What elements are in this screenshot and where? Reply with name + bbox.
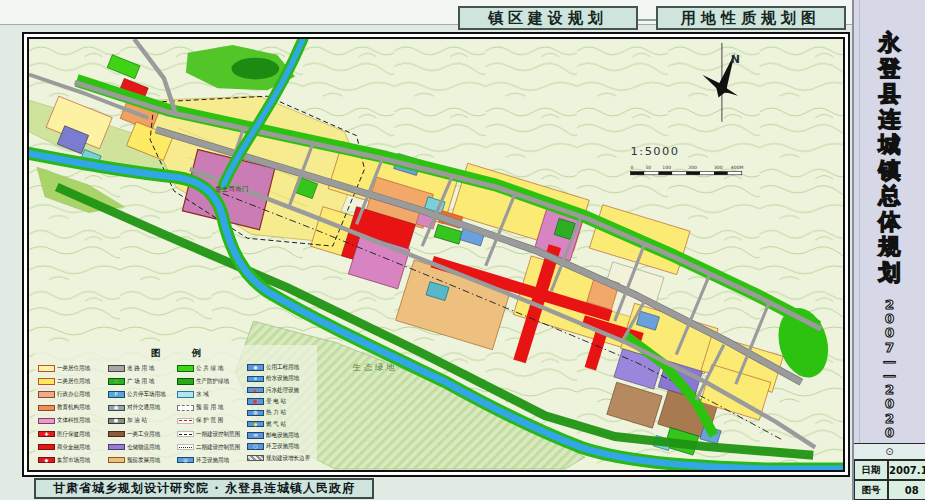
legend-item: 一类居住用地 [38,362,105,375]
legend-swatch: ◉ [247,364,264,371]
legend-item-label: 一类居住用地 [57,364,90,373]
legend-title: 图 例 [49,347,317,360]
sidebar-period-char: — [883,369,896,383]
scale-tick-label: 50 [645,165,651,170]
legend-item: 教育机构用地 [38,401,105,414]
legend-swatch-glyph: ∷ [114,379,117,384]
sidebar-title-char: 登 [879,56,901,82]
legend-item: ▣对外交通用地 [108,401,175,414]
legend-item: 商业金融用地 [38,441,105,454]
legend-item: 预留发展用地 [108,454,175,467]
legend-item: 仓储物流用地 [108,441,175,454]
stamp-icon: ⊙ [854,443,925,460]
legend-swatch-glyph: ▪ [254,376,257,381]
legend-swatch [38,391,55,398]
legend-swatch-glyph: P [114,392,117,397]
sidebar-period-char: 2 [885,412,894,426]
legend-item: 文体科技用地 [38,414,105,427]
legend-item: 规划建设增长边界 [247,452,314,463]
legend-column: 公 共 绿 地生产防护绿地水 域预 留 用 地保 护 范 围一期建设控制范围二期… [177,362,244,467]
legend-swatch [177,444,194,451]
sidebar-period-char: 0 [885,312,894,326]
legend-swatch [177,391,194,398]
legend-swatch-glyph: ◉ [253,365,257,370]
credit-bar: 甘肃省城乡规划设计研究院 · 永登县连城镇人民政府 [34,478,374,499]
legend-swatch [177,378,194,385]
scale-tick-label: 0 [631,165,634,170]
legend-item: ✚医疗保健用地 [38,427,105,440]
legend-item-label: 变 电 站 [266,397,286,406]
legend-swatch-glyph: ● [253,399,257,404]
legend-swatch: ▪ [247,376,264,383]
legend-item-label: 水 域 [196,390,209,399]
scale-tick-label: 400M [731,165,744,170]
legend-grid: 一类居住用地二类居住用地行政办公用地教育机构用地文体科技用地✚医疗保健用地商业金… [35,362,317,467]
sidebar-title: 永登县连城镇总体规划 [854,30,925,285]
sidebar-period-char: — [883,355,896,369]
legend-column: ◉公用工程用地▪给水设施用地▪污水处理设施●变 电 站◍热 力 站◆燃 气 站✉… [247,362,314,467]
map-legend: 图 例 一类居住用地二类居住用地行政办公用地教育机构用地文体科技用地✚医疗保健用… [35,345,317,471]
scale-tick-label: 200 [688,165,697,170]
legend-item-label: 公共停车场用地 [127,390,166,399]
sidebar-title-char: 总 [879,183,901,209]
sidebar-title-char: 划 [879,260,901,286]
legend-item: ◉公用工程用地 [247,362,314,373]
legend-swatch: P [108,391,125,398]
scale-tick-label: 100 [662,165,671,170]
sidebar-title-char: 永 [879,30,901,56]
sidebar-period-char: 0 [885,426,894,440]
legend-item-label: 加 油 站 [127,416,147,425]
legend-item-label: 道 路 用 地 [127,364,154,373]
legend-swatch [38,365,55,372]
sidebar-period: 2007——2020 [854,298,925,440]
legend-item-label: 预 留 用 地 [196,403,223,412]
title-connector-line [636,19,656,21]
map-label-eco: 生 态 绿 地 [353,362,395,372]
legend-item: ◆集贸市场用地 [38,454,105,467]
legend-swatch [177,431,194,438]
legend-swatch: ◆ [247,421,264,428]
legend-item: ▪给水设施用地 [247,373,314,384]
info-value: 2007.11 [888,460,925,480]
legend-swatch [177,418,194,425]
legend-swatch: ◍ [247,410,264,417]
legend-item: ●变 电 站 [247,396,314,407]
info-value: 08 [888,480,925,500]
legend-item-label: 污水处理设施 [266,386,299,395]
legend-swatch: ● [247,398,264,405]
legend-swatch [177,365,194,372]
legend-swatch: ▣ [108,405,125,412]
legend-item-label: 燃 气 站 [266,420,286,429]
legend-item: 一期建设控制范围 [177,427,244,440]
legend-item-label: 二类居住用地 [57,377,90,386]
legend-swatch-glyph: ● [114,418,118,423]
legend-item-label: 保 护 范 围 [196,416,223,425]
legend-swatch: ● [108,418,125,425]
legend-swatch-glyph: ✉ [253,433,257,438]
legend-item: 水 域 [177,388,244,401]
legend-swatch [108,457,125,464]
legend-item: ✉邮电设施用地 [247,430,314,441]
legend-line-sample [179,420,192,421]
sidebar-title-char: 县 [879,81,901,107]
sidebar-title-char: 镇 [879,158,901,184]
legend-item: ◍热 力 站 [247,407,314,418]
legend-swatch-glyph: ○ [253,444,257,449]
legend-item-label: 教育机构用地 [57,403,90,412]
legend-item-label: 对外交通用地 [127,403,160,412]
legend-swatch: ○ [247,443,264,450]
legend-swatch [108,444,125,451]
legend-swatch [38,444,55,451]
map-frame: N 1:5000 050100200300400M 鲁土司衙门 生 态 绿 地 … [22,32,850,477]
legend-item-label: 行政办公用地 [57,390,90,399]
right-sidebar: 永登县连城镇总体规划 2007——2020 ⊙ 日期2007.11图号08 [852,0,925,500]
info-label: 图号 [854,480,888,500]
legend-swatch [247,455,264,462]
legend-swatch: ▪ [247,387,264,394]
legend-item-label: 商业金融用地 [57,443,90,452]
legend-item-label: 二期建设控制范围 [196,443,240,452]
legend-item-label: 仓储物流用地 [127,443,160,452]
legend-line-sample [179,447,192,448]
legend-item: ●加 油 站 [108,414,175,427]
legend-swatch-glyph: ◆ [45,458,49,463]
legend-line-sample [179,434,192,435]
legend-item: 生产防护绿地 [177,375,244,388]
legend-swatch-glyph: ▪ [254,388,257,393]
sidebar-title-char: 体 [879,209,901,235]
legend-item: 道 路 用 地 [108,362,175,375]
map-title-right: 用地性质规划图 [656,6,846,30]
sidebar-period-char: 0 [885,397,894,411]
info-label: 日期 [854,460,888,480]
legend-swatch: ✉ [247,432,264,439]
legend-item-label: 热 力 站 [266,408,286,417]
map-title-left: 镇区建设规划 [458,6,638,30]
legend-item-label: 邮电设施用地 [266,431,299,440]
legend-item: ◎环卫设施用地 [177,454,244,467]
sidebar-period-char: 7 [885,341,894,355]
legend-swatch [38,378,55,385]
legend-item-label: 环卫设施用地 [196,456,229,465]
sidebar-title-char: 城 [879,132,901,158]
legend-swatch-glyph: ◎ [183,458,187,463]
sidebar-title-char: 连 [879,107,901,133]
legend-column: 道 路 用 地∷广 场 用 地P公共停车场用地▣对外交通用地●加 油 站一类工业… [108,362,175,467]
sidebar-period-char: 2 [885,383,894,397]
legend-item: 二类居住用地 [38,375,105,388]
legend-item-label: 生产防护绿地 [196,377,229,386]
legend-item-label: 一期建设控制范围 [196,430,240,439]
legend-item-label: 文体科技用地 [57,416,90,425]
legend-swatch: ∷ [108,378,125,385]
legend-item-label: 公 共 绿 地 [196,364,223,373]
legend-item-label: 集贸市场用地 [57,456,90,465]
legend-swatch: ✚ [38,431,55,438]
legend-item-label: 一类工业用地 [127,430,160,439]
legend-item-label: 环卫设施用地 [266,442,299,451]
legend-item-label: 给水设施用地 [266,374,299,383]
north-label: N [731,53,740,66]
legend-item-label: 规划建设增长边界 [266,454,310,463]
sheet-info-table: 日期2007.11图号08 [854,460,925,500]
planning-map-page: { "header": { "title_left": "镇区建设规划", "t… [0,0,925,500]
legend-item-label: 预留发展用地 [127,456,160,465]
legend-item: ▪污水处理设施 [247,385,314,396]
map-canvas: N 1:5000 050100200300400M 鲁土司衙门 生 态 绿 地 … [27,37,845,472]
legend-swatch [108,431,125,438]
scale-label: 1:5000 [631,144,680,158]
sidebar-period-char: 2 [885,298,894,312]
legend-swatch: ◎ [177,457,194,464]
legend-swatch [38,405,55,412]
legend-item: 行政办公用地 [38,388,105,401]
scale-bar-segments [631,172,742,175]
legend-item: P公共停车场用地 [108,388,175,401]
legend-item: 公 共 绿 地 [177,362,244,375]
scale-tick-label: 300 [714,165,723,170]
legend-swatch [177,405,194,412]
legend-column: 一类居住用地二类居住用地行政办公用地教育机构用地文体科技用地✚医疗保健用地商业金… [38,362,105,467]
legend-item: ○环卫设施用地 [247,441,314,452]
legend-swatch-glyph: ▣ [114,405,119,410]
legend-swatch [108,365,125,372]
legend-item: 二期建设控制范围 [177,441,244,454]
legend-item-label: 医疗保健用地 [57,430,90,439]
legend-item: ◆燃 气 站 [247,418,314,429]
legend-item: ∷广 场 用 地 [108,375,175,388]
legend-item: 保 护 范 围 [177,414,244,427]
legend-item-label: 公用工程用地 [266,363,299,372]
map-label-yamen: 鲁土司衙门 [216,185,249,193]
sidebar-title-char: 规 [879,234,901,260]
legend-swatch-glyph: ✚ [44,432,48,437]
legend-item: 一类工业用地 [108,427,175,440]
legend-item-label: 广 场 用 地 [127,377,154,386]
legend-swatch [38,418,55,425]
legend-item: 预 留 用 地 [177,401,244,414]
legend-swatch-glyph: ◍ [253,410,257,415]
legend-swatch-glyph: ◆ [254,422,258,427]
sidebar-period-char: 0 [885,326,894,340]
legend-swatch: ◆ [38,457,55,464]
